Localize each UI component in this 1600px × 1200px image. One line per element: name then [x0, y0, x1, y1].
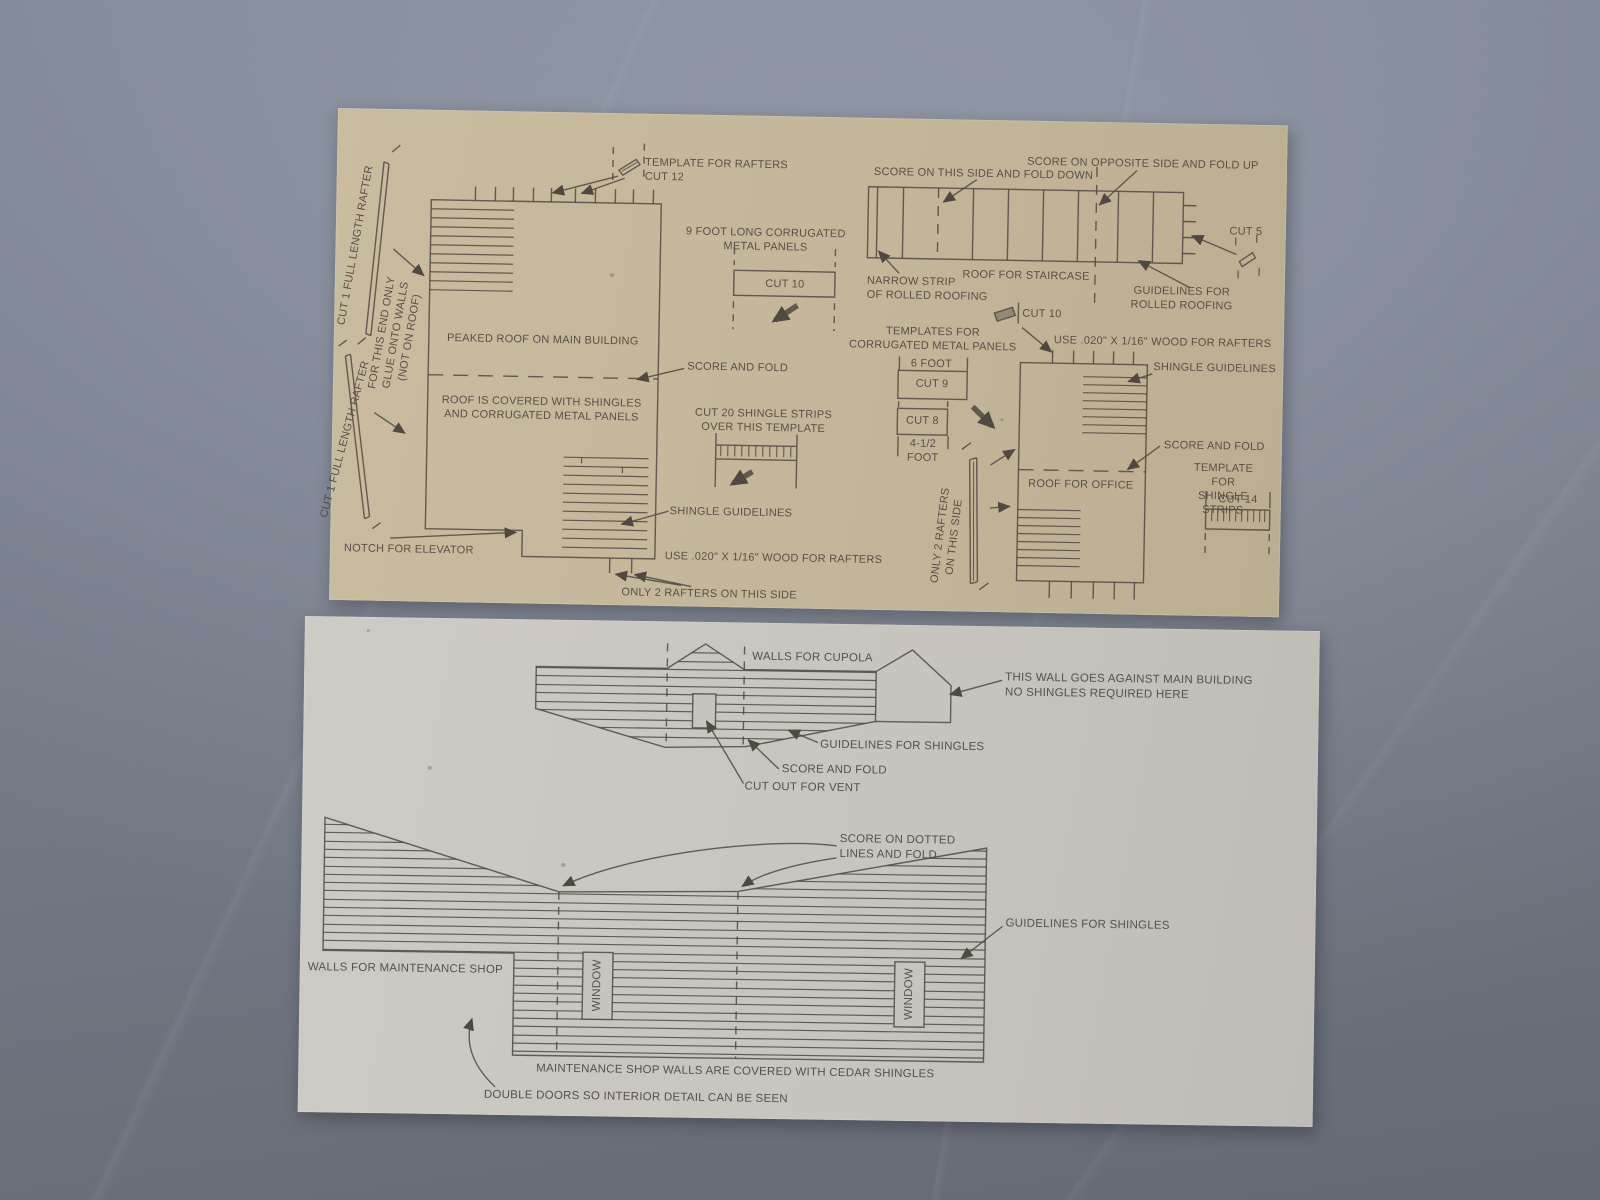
paper-speck	[610, 273, 614, 277]
four-half-foot-label: 4-1/2 FOOT	[907, 436, 939, 465]
rafter-template-top	[552, 142, 644, 195]
window-2-label: WINDOW	[902, 968, 917, 1020]
cut-out-for-vent-label: CUT OUT FOR VENT	[744, 780, 860, 796]
templates-corrugated-label: TEMPLATES FOR CORRUGATED METAL PANELS	[849, 323, 1017, 354]
shingle-guidelines-office-label: SHINGLE GUIDELINES	[1153, 360, 1276, 376]
cut14-label: CUT 14	[1218, 492, 1257, 507]
paper-speck	[1000, 418, 1003, 421]
walls-for-cupola-label: WALLS FOR CUPOLA	[752, 650, 873, 667]
photo-of-template-sheets: TEMPLATE FOR RAFTERS CUT 12 9 FOOT LONG …	[0, 0, 1600, 1200]
cut20-strips-label: CUT 20 SHINGLE STRIPS OVER THIS TEMPLATE	[695, 406, 833, 437]
cut9-label: CUT 9	[915, 377, 948, 392]
roof-for-office-label: ROOF FOR OFFICE	[1028, 477, 1133, 493]
cut10-small-label: CUT 10	[1022, 307, 1061, 322]
nine-foot-panels-label: 9 FOOT LONG CORRUGATED METAL PANELS	[686, 224, 846, 255]
walls-maintenance-shop-label: WALLS FOR MAINTENANCE SHOP	[308, 960, 503, 978]
template-for-rafters-label: TEMPLATE FOR RAFTERS CUT 12	[645, 156, 788, 187]
six-foot-label: 6 FOOT	[911, 357, 952, 372]
score-and-fold-office-label: SCORE AND FOLD	[1164, 438, 1265, 454]
paper-speck	[561, 863, 565, 867]
office-roof-outline	[988, 349, 1162, 600]
cut5-label: CUT 5	[1229, 224, 1262, 239]
roof-templates-sheet: TEMPLATE FOR RAFTERS CUT 12 9 FOOT LONG …	[329, 108, 1288, 617]
office-rafter-strip	[959, 442, 991, 590]
wall-templates-sheet: WALLS FOR CUPOLA THIS WALL GOES AGAINST …	[298, 616, 1320, 1127]
paper-speck	[428, 766, 432, 770]
template-shingle-strips-label: TEMPLATE FOR SHINGLE STRIPS	[1193, 461, 1253, 518]
cut10-box-label: CUT 10	[765, 277, 804, 292]
shingle-guidelines-main-label: SHINGLE GUIDELINES	[670, 504, 793, 520]
score-and-fold-main-label: SCORE AND FOLD	[687, 359, 788, 375]
guidelines-shingles-shop-label: GUIDELINES FOR SHINGLES	[1005, 916, 1169, 933]
score-and-fold-cupola-label: SCORE AND FOLD	[782, 762, 887, 778]
guidelines-shingles-cupola-label: GUIDELINES FOR SHINGLES	[820, 738, 984, 755]
notch-for-elevator-label: NOTCH FOR ELEVATOR	[344, 541, 474, 557]
roof-covered-label: ROOF IS COVERED WITH SHINGLES AND CORRUG…	[441, 393, 641, 425]
roof-templates-linework	[329, 108, 1288, 617]
cut20-shingle-strip-template	[715, 433, 797, 488]
against-main-building-label: THIS WALL GOES AGAINST MAIN BUILDING NO …	[1005, 670, 1253, 703]
cut5-template	[1191, 234, 1260, 279]
paper-speck	[367, 629, 370, 632]
cut8-label: CUT 8	[906, 413, 939, 428]
score-dotted-label: SCORE ON DOTTED LINES AND FOLD	[839, 832, 955, 863]
guidelines-rolled-roofing-label: GUIDELINES FOR ROLLED ROOFING	[1130, 284, 1232, 314]
narrow-strip-label: NARROW STRIP OF ROLLED ROOFING	[867, 274, 988, 304]
main-roof-outline	[425, 186, 662, 574]
window-1-label: WINDOW	[590, 959, 605, 1011]
